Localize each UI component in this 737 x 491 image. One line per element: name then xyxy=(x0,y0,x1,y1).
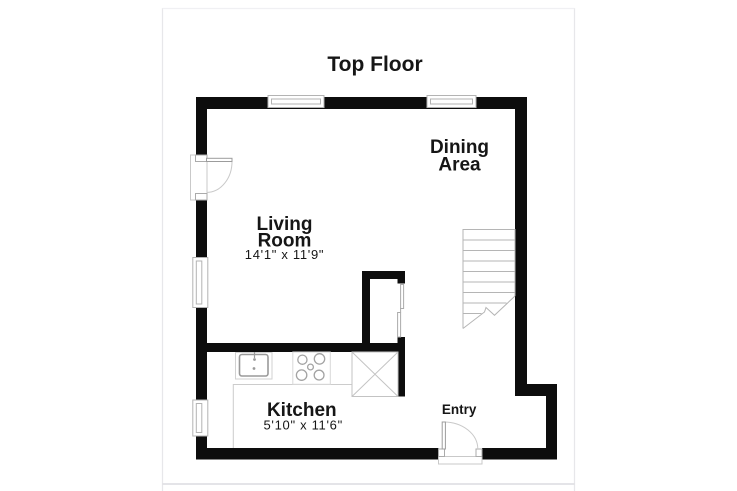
svg-text:5'10" x 11'6": 5'10" x 11'6" xyxy=(263,418,342,433)
svg-text:Top Floor: Top Floor xyxy=(327,53,422,76)
svg-text:Entry: Entry xyxy=(442,402,477,417)
svg-text:14'1" x 11'9": 14'1" x 11'9" xyxy=(245,247,324,262)
svg-text:Area: Area xyxy=(438,154,481,175)
